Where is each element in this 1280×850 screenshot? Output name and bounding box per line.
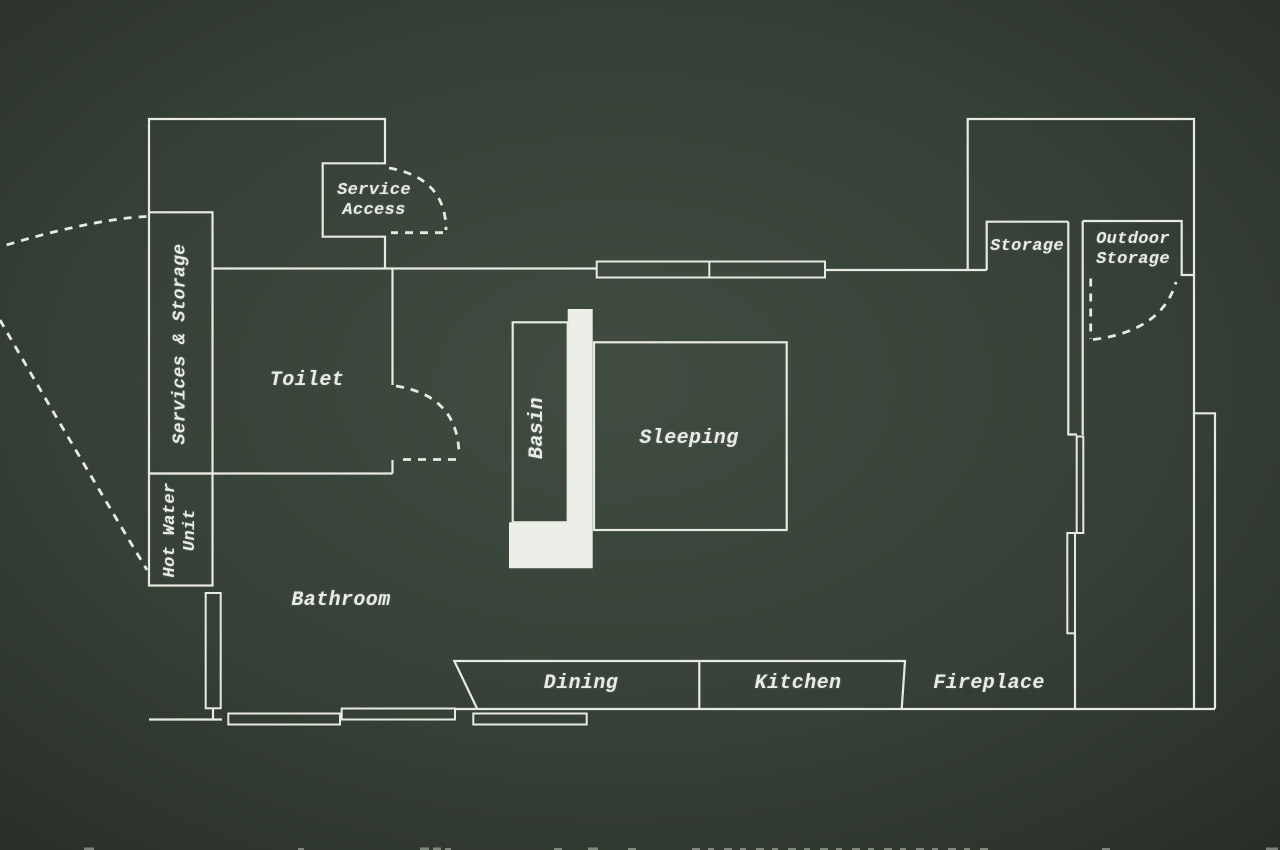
basin-outline	[513, 322, 568, 522]
bottom-window-3	[473, 714, 586, 725]
top-right-block	[968, 119, 1194, 709]
corridor-window-2	[1067, 533, 1075, 633]
top-left-block	[149, 119, 385, 269]
left-vertical-window	[206, 593, 221, 708]
bottom-wall-left	[149, 708, 222, 719]
dining-kitchen-counter	[454, 661, 905, 709]
toilet-door-arc	[396, 386, 459, 456]
floor-plan-page: { "plan": { "type": "architectural-floor…	[0, 0, 1280, 850]
outdoor-storage-room	[1083, 221, 1194, 275]
sleeping-bed-outline	[594, 342, 787, 530]
entry-door-arc-upper	[0, 217, 147, 248]
bottom-window-1	[228, 714, 340, 725]
top-window	[597, 262, 825, 278]
outdoor-storage-door-arc	[1093, 282, 1176, 340]
basin-counter-shape	[509, 309, 593, 568]
entry-door-arc-lower	[0, 320, 147, 570]
walls	[149, 119, 1215, 720]
corridor-wall-left	[1068, 222, 1077, 435]
hot-water-unit-room	[149, 474, 213, 586]
corridor-window-1	[1077, 437, 1084, 534]
storage-niche	[987, 222, 1069, 270]
services-storage-room	[149, 212, 213, 473]
right-outer-wall	[1194, 413, 1215, 709]
service-access-door-arc	[389, 168, 446, 230]
windows	[206, 262, 1084, 725]
floor-plan-drawing	[0, 0, 1280, 850]
basin-fixture	[509, 309, 593, 568]
floor-plan-canvas: Service AccessServices & StorageToiletHo…	[0, 0, 1280, 850]
bottom-window-2	[342, 709, 455, 720]
